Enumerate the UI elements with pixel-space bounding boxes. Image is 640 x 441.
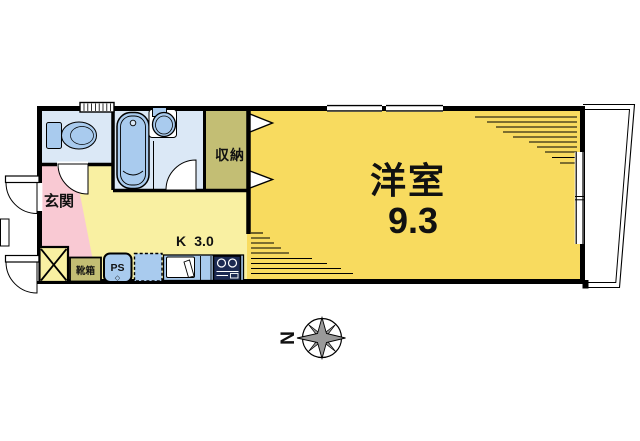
top-window-right xyxy=(386,105,443,112)
entry-door-leaf-bottom xyxy=(6,256,40,263)
floorplan-canvas: 靴箱 PS ◇ 洋室 9.3 K 3.0 収納 玄関 N xyxy=(0,0,640,441)
louver-window xyxy=(80,103,114,113)
refrigerator-space xyxy=(135,254,163,282)
entrance-label: 玄関 xyxy=(44,192,74,210)
pipe-shaft-mark: ◇ xyxy=(115,275,121,282)
entry-door-leaf-top xyxy=(6,176,40,183)
washbasin-icon xyxy=(149,108,177,138)
stove-icon xyxy=(214,256,241,281)
shoe-cabinet: 靴箱 xyxy=(70,258,101,282)
toilet-icon xyxy=(47,122,97,149)
meter-box xyxy=(1,219,10,246)
top-window-left xyxy=(327,105,382,112)
western-room-size: 9.3 xyxy=(388,200,438,241)
pipe-shaft-label: PS xyxy=(110,262,124,274)
floorplan-page: 靴箱 PS ◇ 洋室 9.3 K 3.0 収納 玄関 N xyxy=(0,0,640,441)
closet-label: 収納 xyxy=(215,147,245,163)
cross-box xyxy=(40,247,69,282)
sink-icon xyxy=(167,257,195,278)
shoe-cabinet-label: 靴箱 xyxy=(76,265,96,277)
kitchen-counter xyxy=(164,255,244,281)
compass-north-label: N xyxy=(276,331,297,345)
kitchen-size: 3.0 xyxy=(194,233,214,249)
bathtub-icon xyxy=(117,113,149,189)
pipe-shaft: PS ◇ xyxy=(104,254,132,283)
kitchen-label: K xyxy=(176,233,186,249)
right-window xyxy=(575,152,584,244)
western-room-label: 洋室 xyxy=(370,160,446,201)
